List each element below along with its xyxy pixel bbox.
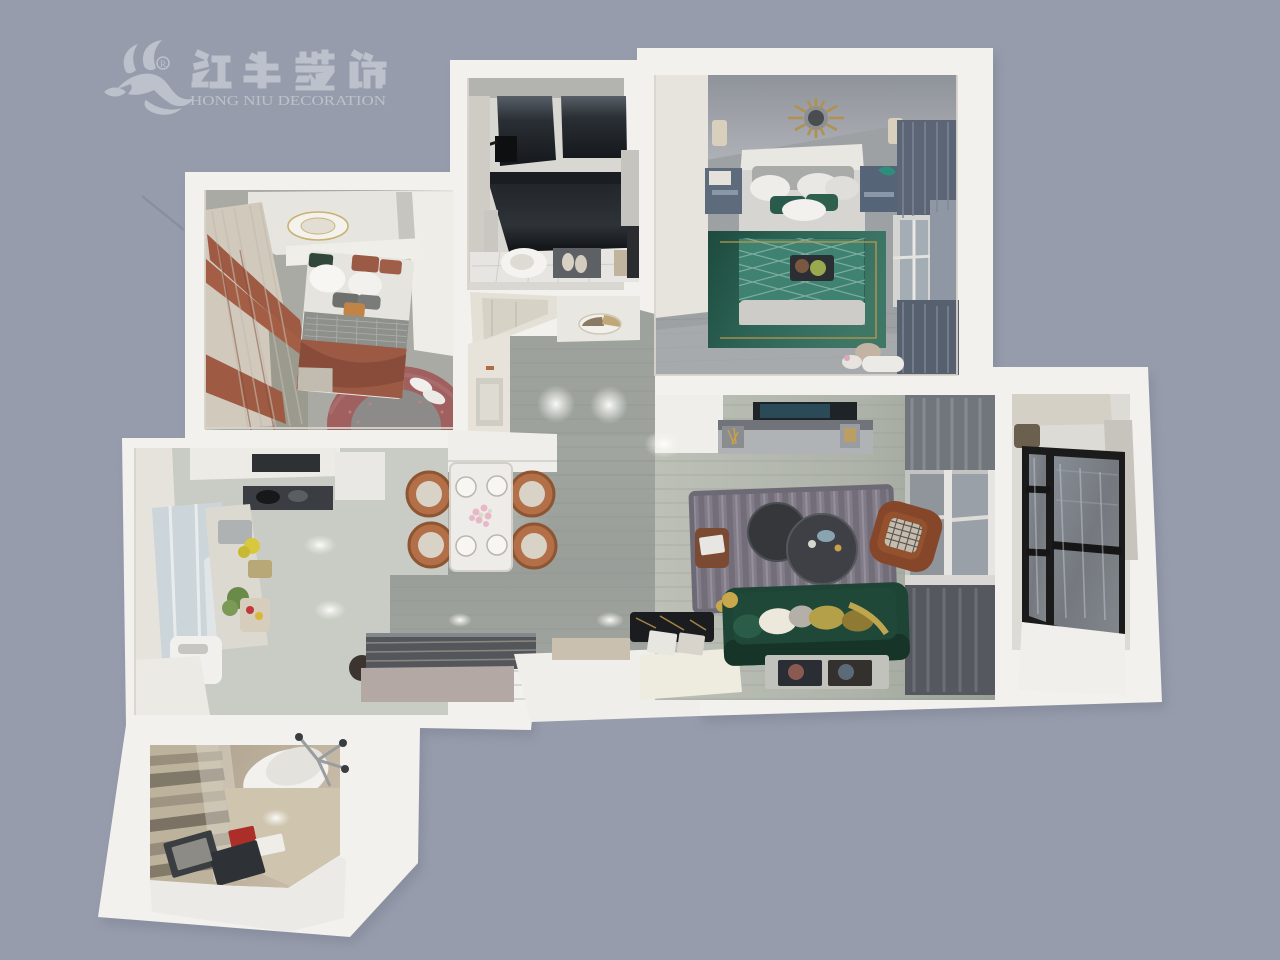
svg-text:HONG NIU DECORATION: HONG NIU DECORATION: [190, 94, 386, 109]
svg-text:R: R: [160, 59, 166, 69]
